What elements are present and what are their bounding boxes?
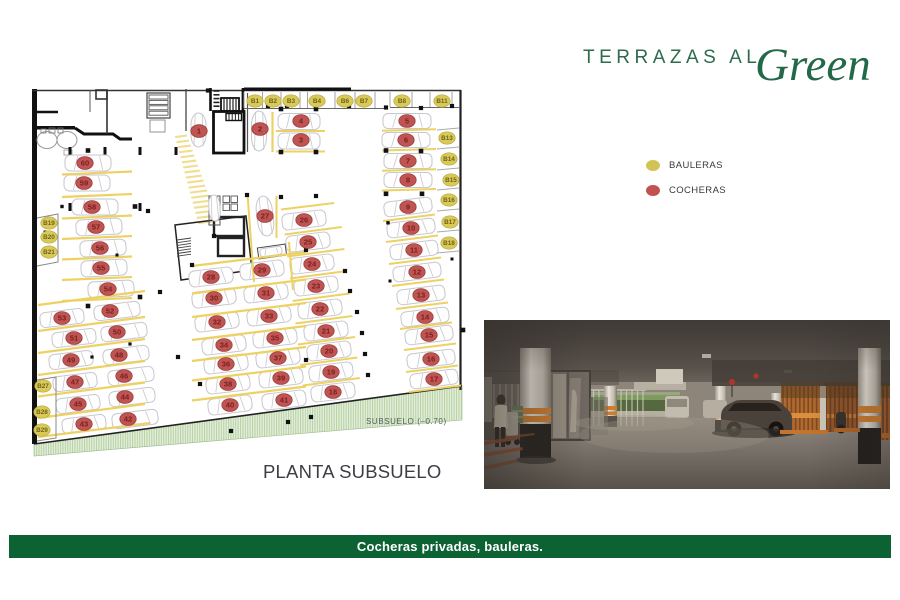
svg-text:25: 25: [304, 238, 313, 247]
svg-text:B20: B20: [43, 234, 55, 241]
svg-text:52: 52: [106, 307, 114, 316]
svg-text:55: 55: [97, 264, 106, 273]
svg-text:14: 14: [421, 313, 430, 322]
svg-text:31: 31: [262, 289, 271, 298]
svg-text:43: 43: [80, 420, 88, 429]
svg-text:18: 18: [329, 388, 337, 397]
svg-text:B4: B4: [313, 98, 322, 105]
svg-text:13: 13: [417, 291, 425, 300]
svg-text:B11: B11: [436, 98, 448, 105]
svg-text:B16: B16: [443, 197, 455, 204]
svg-text:37: 37: [274, 354, 282, 363]
svg-text:22: 22: [316, 305, 324, 314]
svg-text:40: 40: [226, 401, 234, 410]
svg-text:SUBSUELO (–0.70): SUBSUELO (–0.70): [366, 417, 447, 426]
svg-text:27: 27: [261, 212, 269, 221]
svg-text:B7: B7: [360, 98, 369, 105]
svg-text:B17: B17: [444, 219, 456, 226]
svg-text:48: 48: [115, 351, 123, 360]
svg-text:B3: B3: [287, 98, 296, 105]
svg-text:24: 24: [308, 260, 317, 269]
svg-text:29: 29: [258, 266, 266, 275]
svg-text:B28: B28: [36, 409, 48, 416]
svg-text:12: 12: [413, 268, 421, 277]
svg-text:11: 11: [410, 246, 419, 255]
svg-text:19: 19: [327, 368, 335, 377]
svg-text:8: 8: [406, 176, 410, 185]
svg-text:45: 45: [74, 400, 83, 409]
svg-text:23: 23: [312, 282, 320, 291]
svg-text:53: 53: [58, 314, 66, 323]
svg-text:41: 41: [280, 396, 289, 405]
svg-text:2: 2: [258, 125, 262, 134]
svg-text:30: 30: [210, 294, 218, 303]
svg-text:57: 57: [92, 223, 100, 232]
svg-text:B6: B6: [341, 98, 350, 105]
svg-text:6: 6: [404, 136, 408, 145]
svg-text:B29: B29: [36, 427, 48, 434]
svg-text:16: 16: [427, 355, 435, 364]
svg-text:60: 60: [81, 159, 89, 168]
svg-text:50: 50: [113, 328, 121, 337]
svg-text:B14: B14: [443, 156, 455, 163]
svg-text:38: 38: [224, 380, 232, 389]
svg-text:10: 10: [407, 224, 415, 233]
svg-text:B8: B8: [398, 98, 407, 105]
svg-text:9: 9: [406, 203, 410, 212]
svg-text:B27: B27: [37, 383, 49, 390]
svg-text:20: 20: [325, 347, 333, 356]
svg-text:21: 21: [322, 327, 331, 336]
svg-text:39: 39: [277, 374, 285, 383]
svg-text:17: 17: [430, 375, 438, 384]
svg-text:58: 58: [88, 203, 96, 212]
svg-text:B1: B1: [251, 98, 260, 105]
svg-text:26: 26: [300, 216, 308, 225]
svg-text:54: 54: [104, 285, 113, 294]
svg-text:49: 49: [67, 356, 75, 365]
svg-text:B15: B15: [445, 177, 457, 184]
svg-text:34: 34: [220, 341, 229, 350]
svg-text:33: 33: [265, 312, 273, 321]
svg-text:B13: B13: [441, 135, 453, 142]
svg-text:B21: B21: [43, 249, 55, 256]
svg-text:47: 47: [71, 378, 79, 387]
svg-text:15: 15: [425, 331, 434, 340]
svg-text:56: 56: [96, 244, 104, 253]
svg-text:42: 42: [124, 415, 132, 424]
svg-text:44: 44: [121, 393, 130, 402]
svg-text:51: 51: [70, 334, 79, 343]
svg-text:46: 46: [120, 372, 128, 381]
svg-text:32: 32: [213, 318, 221, 327]
svg-text:3: 3: [299, 136, 303, 145]
svg-text:7: 7: [406, 157, 410, 166]
svg-text:B19: B19: [43, 220, 55, 227]
svg-text:35: 35: [271, 334, 280, 343]
svg-text:B2: B2: [269, 98, 278, 105]
svg-text:59: 59: [80, 179, 88, 188]
svg-text:B18: B18: [443, 240, 455, 247]
svg-text:28: 28: [207, 273, 215, 282]
svg-text:36: 36: [222, 360, 230, 369]
